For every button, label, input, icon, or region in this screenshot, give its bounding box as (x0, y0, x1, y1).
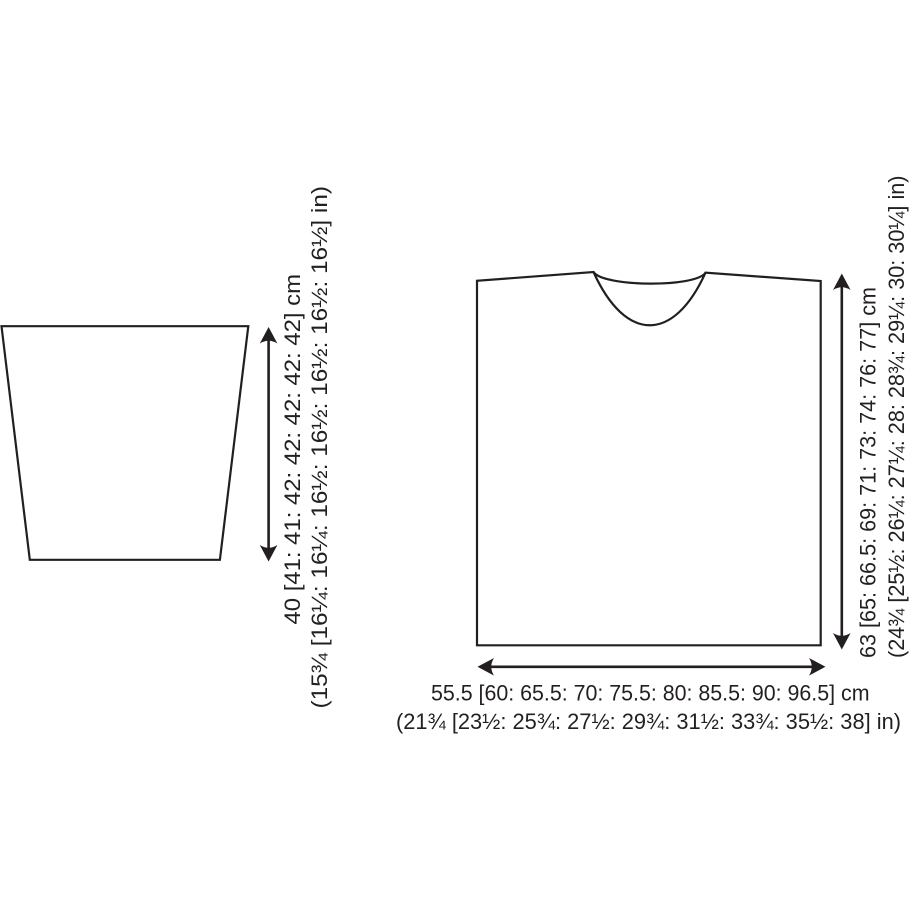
svg-text:(15¾ [16¼: 16¼: 16½: 16½: 16½:: (15¾ [16¼: 16¼: 16½: 16½: 16½: 16½: 16½]… (307, 186, 332, 709)
svg-text:(21¾ [23½: 25¾: 27½: 29¾: 31½:: (21¾ [23½: 25¾: 27½: 29¾: 31½: 33¾: 35½:… (396, 709, 901, 734)
svg-text:40 [41: 41: 42: 42: 42: 42: 42: 40 [41: 41: 42: 42: 42: 42: 42] cm (280, 274, 305, 625)
svg-text:(24¾ [25½: 26¼: 27¼: 28: 28¾:: (24¾ [25½: 26¼: 27¼: 28: 28¾: 29¼: 30: 3… (884, 176, 909, 659)
svg-text:63 [65: 66.5: 69: 71: 73: 74:: 63 [65: 66.5: 69: 71: 73: 74: 76: 77] cm (856, 287, 881, 658)
svg-text:55.5 [60: 65.5: 70: 75.5: 80:: 55.5 [60: 65.5: 70: 75.5: 80: 85.5: 90: … (431, 680, 870, 705)
